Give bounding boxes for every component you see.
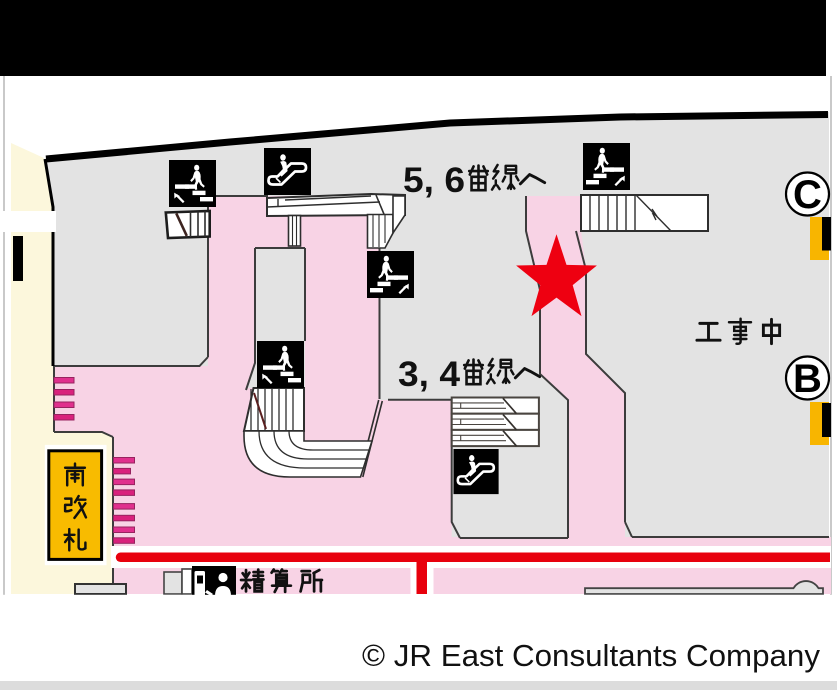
svg-text:C: C <box>793 173 822 217</box>
svg-text:5, 6: 5, 6 <box>403 161 465 200</box>
svg-text:© JR East Consultants Company: © JR East Consultants Company <box>362 638 820 673</box>
svg-text:3, 4: 3, 4 <box>398 355 461 394</box>
svg-text:B: B <box>793 357 822 401</box>
